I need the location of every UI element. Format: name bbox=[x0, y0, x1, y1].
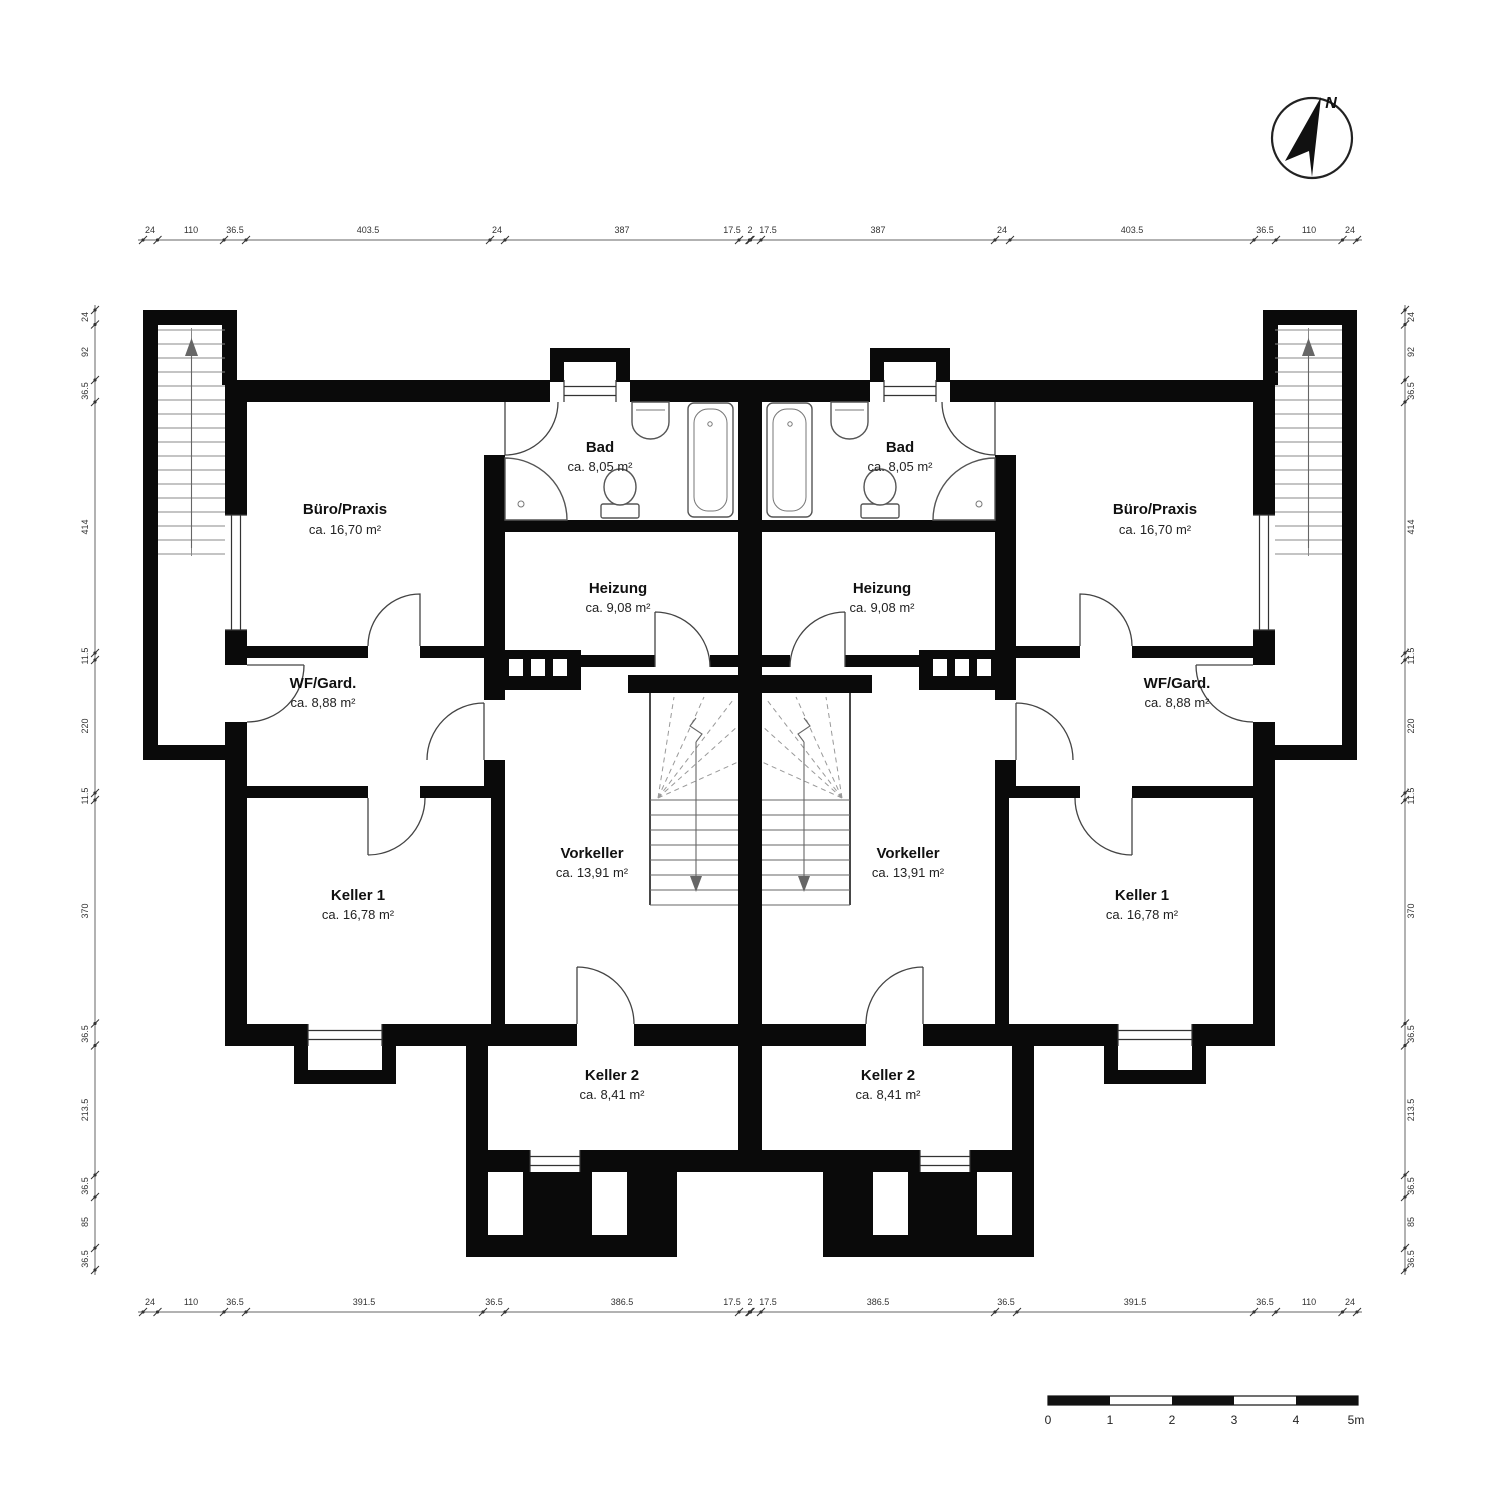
window-bad-lightwell bbox=[564, 380, 616, 402]
dim-label: 403.5 bbox=[357, 225, 380, 235]
dim-label: 36.5 bbox=[1406, 1025, 1416, 1043]
scale-label: 4 bbox=[1293, 1413, 1300, 1427]
room-label: Vorkeller bbox=[876, 845, 939, 862]
dim-label: 387 bbox=[614, 225, 629, 235]
dim-label: 386.5 bbox=[867, 1297, 890, 1307]
dim-label: 36.5 bbox=[1256, 1297, 1274, 1307]
dim-label: 36.5 bbox=[226, 225, 244, 235]
dim-label: 36.5 bbox=[1256, 225, 1274, 235]
room-label: WF/Gard. bbox=[1144, 675, 1211, 692]
chimney bbox=[497, 650, 581, 690]
room-labels-right-unit: Büro/Praxis ca. 16,70 m² Bad ca. 8,05 m²… bbox=[849, 439, 1210, 1102]
north-arrow: N bbox=[1272, 95, 1352, 178]
dim-label: 36.5 bbox=[1406, 1250, 1416, 1268]
dim-label: 387 bbox=[870, 225, 885, 235]
dim-label: 110 bbox=[184, 1297, 198, 1307]
room-area: ca. 9,08 m² bbox=[849, 600, 915, 615]
dim-bottom: 24 110 36.5 391.5 36.5 386.5 17.5 2 17.5… bbox=[138, 1297, 1362, 1316]
dim-label: 391.5 bbox=[353, 1297, 376, 1307]
dim-label: 24 bbox=[1345, 1297, 1355, 1307]
dim-label: 11.5 bbox=[1406, 648, 1416, 665]
north-label: N bbox=[1325, 95, 1337, 112]
corner-shower bbox=[505, 458, 567, 520]
room-area: ca. 8,41 m² bbox=[579, 1087, 645, 1102]
dim-label: 391.5 bbox=[1124, 1297, 1147, 1307]
outer-walls bbox=[225, 348, 738, 1257]
dim-label: 213.5 bbox=[80, 1099, 90, 1122]
bathtub bbox=[688, 403, 733, 517]
room-label: Keller 1 bbox=[331, 887, 385, 904]
dim-label: 36.5 bbox=[1406, 382, 1416, 400]
dim-label: 2 bbox=[747, 1297, 752, 1307]
exterior-stair-enclosure bbox=[143, 310, 237, 760]
dim-label: 24 bbox=[80, 312, 90, 322]
dim-label: 36.5 bbox=[997, 1297, 1015, 1307]
dim-label: 370 bbox=[1406, 903, 1416, 918]
party-wall bbox=[738, 380, 762, 1172]
dim-label: 24 bbox=[145, 225, 155, 235]
dim-top: 24 110 36.5 403.5 24 387 17.5 2 17.5 387… bbox=[138, 225, 1362, 244]
room-labels-left-unit: Büro/Praxis ca. 16,70 m² Bad ca. 8,05 m²… bbox=[290, 439, 652, 1102]
dim-label: 213.5 bbox=[1406, 1099, 1416, 1122]
dim-label: 110 bbox=[184, 225, 198, 235]
dim-label: 85 bbox=[80, 1217, 90, 1227]
dim-label: 24 bbox=[145, 1297, 155, 1307]
dim-label: 11.5 bbox=[80, 788, 90, 805]
dim-label: 220 bbox=[80, 718, 90, 733]
dim-label: 11.5 bbox=[1406, 788, 1416, 805]
dim-label: 11.5 bbox=[80, 648, 90, 665]
room-area: ca. 8,88 m² bbox=[290, 695, 356, 710]
central-staircase bbox=[650, 693, 738, 905]
dim-label: 36.5 bbox=[80, 1250, 90, 1268]
unit-half-geometry bbox=[143, 310, 738, 1257]
room-area: ca. 13,91 m² bbox=[556, 865, 629, 880]
dim-label: 370 bbox=[80, 903, 90, 918]
dim-label: 2 bbox=[747, 225, 752, 235]
dim-label: 220 bbox=[1406, 718, 1416, 733]
room-label: Vorkeller bbox=[560, 845, 623, 862]
dim-label: 386.5 bbox=[611, 1297, 634, 1307]
dim-label: 24 bbox=[997, 225, 1007, 235]
room-area: ca. 8,05 m² bbox=[867, 459, 933, 474]
interior-walls bbox=[225, 455, 738, 1024]
window-buero-left bbox=[225, 515, 247, 630]
room-label: Büro/Praxis bbox=[1113, 501, 1197, 518]
room-area: ca. 13,91 m² bbox=[872, 865, 945, 880]
dim-label: 24 bbox=[1345, 225, 1355, 235]
dim-label: 92 bbox=[80, 347, 90, 357]
dim-label: 17.5 bbox=[723, 1297, 741, 1307]
room-area: ca. 8,05 m² bbox=[567, 459, 633, 474]
dim-label: 85 bbox=[1406, 1217, 1416, 1227]
room-label: Heizung bbox=[853, 580, 911, 597]
toilet bbox=[601, 469, 639, 518]
room-label: Keller 2 bbox=[861, 1067, 915, 1084]
scale-label: 2 bbox=[1169, 1413, 1176, 1427]
scale-label: 0 bbox=[1045, 1413, 1052, 1427]
stair-down-arrow bbox=[690, 718, 702, 892]
scale-label: 1 bbox=[1107, 1413, 1114, 1427]
dim-label: 24 bbox=[1406, 312, 1416, 322]
room-area: ca. 16,70 m² bbox=[1119, 522, 1192, 537]
dim-label: 36.5 bbox=[80, 382, 90, 400]
north-arrow-needle bbox=[1285, 97, 1321, 177]
dim-label: 17.5 bbox=[723, 225, 741, 235]
stair-up-arrow bbox=[185, 338, 198, 356]
dim-label: 403.5 bbox=[1121, 225, 1144, 235]
window-keller2 bbox=[530, 1150, 580, 1172]
dim-label: 36.5 bbox=[485, 1297, 503, 1307]
room-label: WF/Gard. bbox=[290, 675, 357, 692]
dim-label: 414 bbox=[80, 519, 90, 534]
room-area: ca. 16,78 m² bbox=[322, 907, 395, 922]
dim-right: 24 92 36.5 414 11.5 220 11.5 370 36.5 21… bbox=[1401, 305, 1416, 1275]
scale-bar: 0 1 2 3 4 5m bbox=[1045, 1396, 1365, 1427]
floor-plan-page: Büro/Praxis ca. 16,70 m² Bad ca. 8,05 m²… bbox=[0, 0, 1500, 1500]
scale-label: 3 bbox=[1231, 1413, 1238, 1427]
room-label: Bad bbox=[886, 439, 914, 456]
room-area: ca. 16,78 m² bbox=[1106, 907, 1179, 922]
dim-label: 36.5 bbox=[80, 1025, 90, 1043]
dim-left: 24 92 36.5 414 11.5 220 11.5 370 36.5 21… bbox=[80, 305, 99, 1275]
room-area: ca. 8,41 m² bbox=[855, 1087, 921, 1102]
room-label: Büro/Praxis bbox=[303, 501, 387, 518]
floor-plan-drawing: Büro/Praxis ca. 16,70 m² Bad ca. 8,05 m²… bbox=[0, 0, 1500, 1500]
dim-label: 92 bbox=[1406, 347, 1416, 357]
room-area: ca. 16,70 m² bbox=[309, 522, 382, 537]
washbasin bbox=[632, 402, 669, 439]
room-area: ca. 9,08 m² bbox=[585, 600, 651, 615]
dim-label: 36.5 bbox=[1406, 1177, 1416, 1195]
room-label: Heizung bbox=[589, 580, 647, 597]
dim-label: 110 bbox=[1302, 1297, 1316, 1307]
dim-label: 414 bbox=[1406, 519, 1416, 534]
dim-label: 36.5 bbox=[226, 1297, 244, 1307]
doors bbox=[247, 402, 710, 1024]
room-area: ca. 8,88 m² bbox=[1144, 695, 1210, 710]
window-keller1 bbox=[308, 1024, 382, 1046]
dim-label: 110 bbox=[1302, 225, 1316, 235]
room-label: Keller 2 bbox=[585, 1067, 639, 1084]
dim-label: 17.5 bbox=[759, 1297, 777, 1307]
dim-label: 36.5 bbox=[80, 1177, 90, 1195]
dim-label: 24 bbox=[492, 225, 502, 235]
room-label: Bad bbox=[586, 439, 614, 456]
room-label: Keller 1 bbox=[1115, 887, 1169, 904]
dim-label: 17.5 bbox=[759, 225, 777, 235]
scale-label: 5m bbox=[1348, 1413, 1365, 1427]
